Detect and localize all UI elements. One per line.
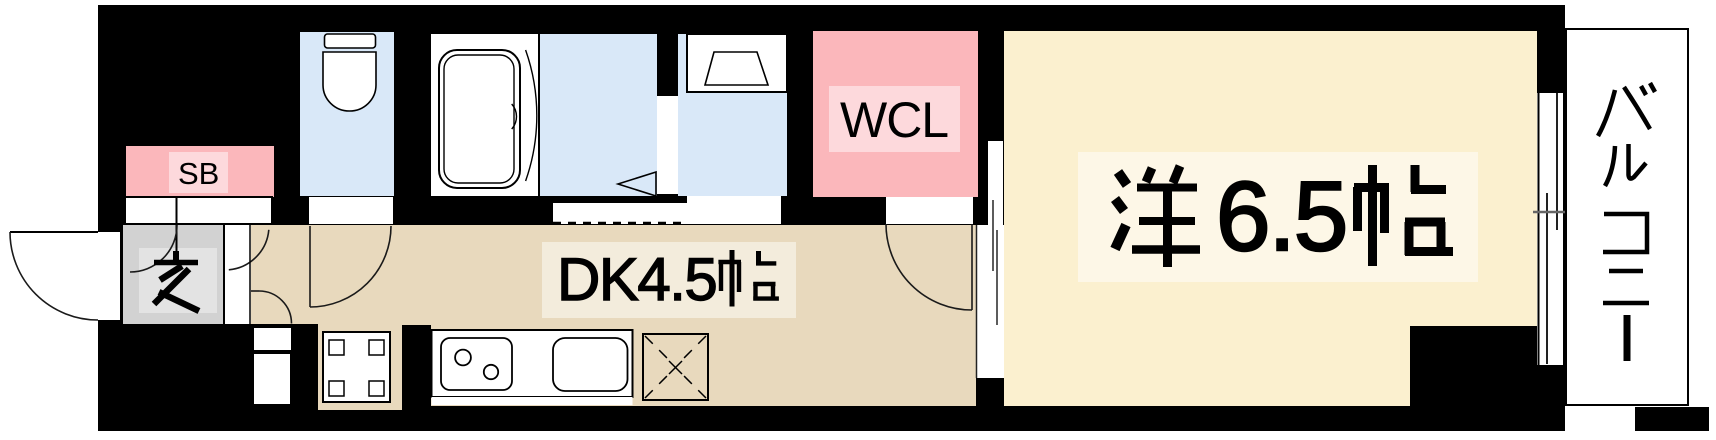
svg-text:WCL: WCL [840,92,948,148]
svg-text:DK4.5: DK4.5 [557,246,716,313]
svg-text:6.5: 6.5 [1216,161,1346,271]
svg-text:SB: SB [178,156,219,191]
